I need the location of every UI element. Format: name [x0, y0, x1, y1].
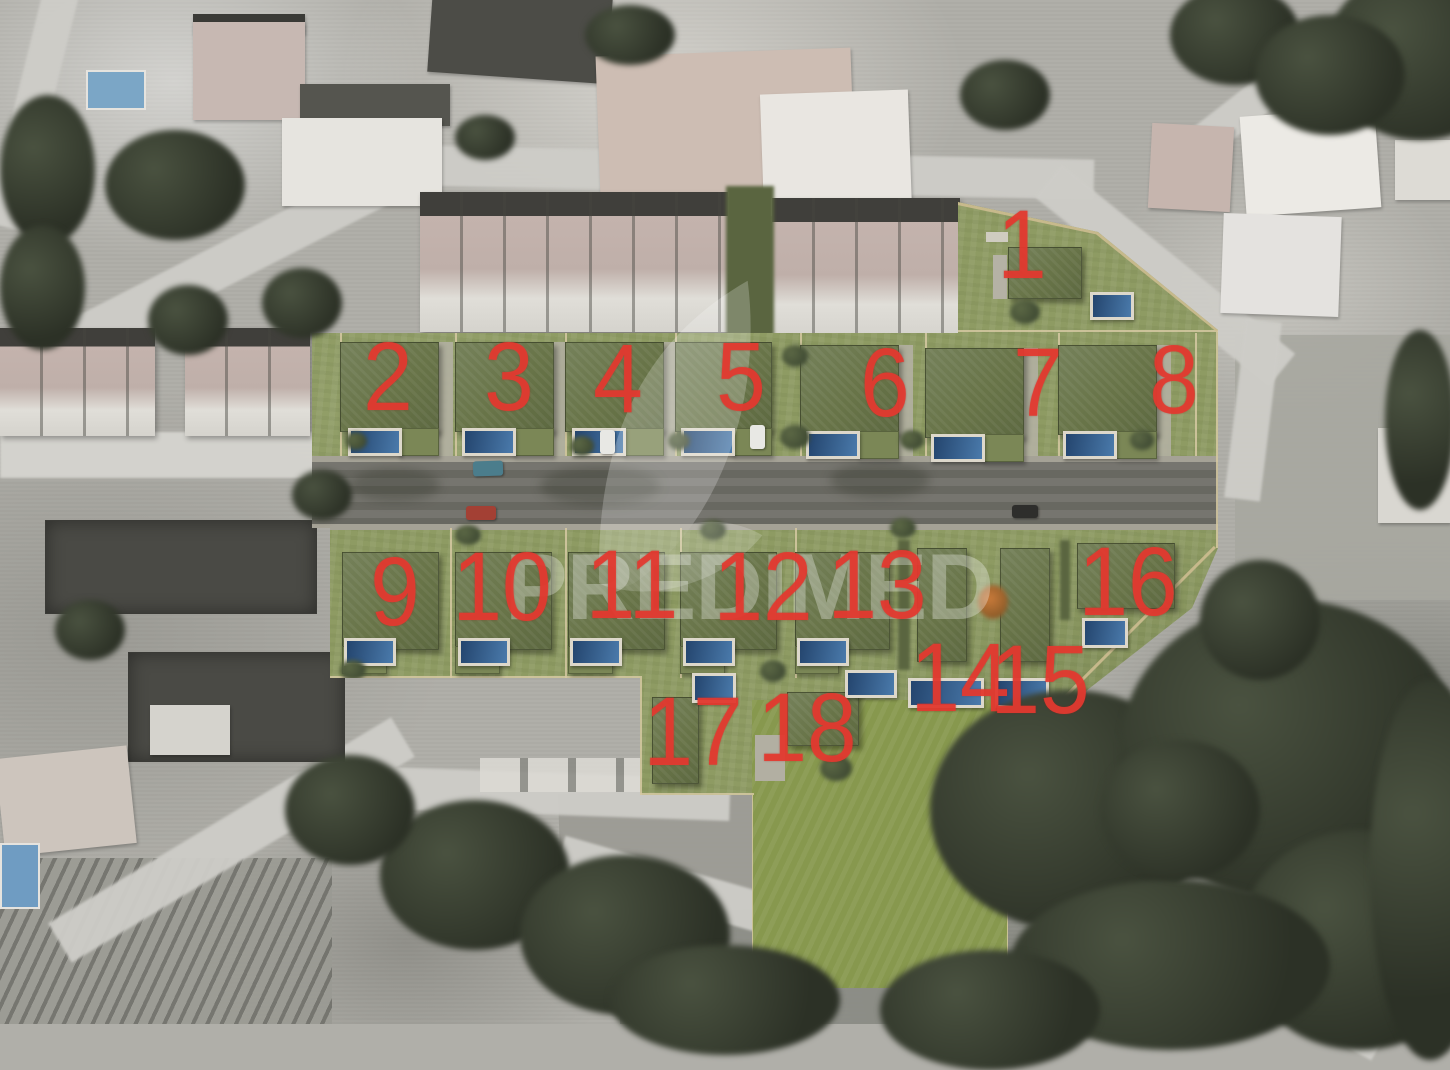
pool: [1090, 292, 1134, 320]
house-roof: [193, 22, 305, 120]
lot-number-5: 5: [716, 328, 766, 425]
house-roof: [427, 0, 613, 84]
tree-cluster: [0, 225, 85, 350]
lot-number-6: 6: [860, 334, 910, 431]
house-roof: [150, 705, 230, 755]
existing-pool: [86, 70, 146, 110]
lot-wall: [330, 676, 642, 678]
tree-cluster: [285, 755, 415, 865]
pool: [931, 434, 985, 462]
tree-cluster: [1100, 740, 1260, 880]
pool: [1063, 431, 1117, 459]
lot-number-18: 18: [757, 679, 856, 776]
forest: [880, 950, 1100, 1070]
lot-wall: [640, 793, 754, 795]
villa-building: [1058, 345, 1157, 435]
lot-number-11: 11: [586, 536, 679, 633]
tree-cluster: [0, 95, 95, 245]
tree-cluster: [262, 268, 342, 338]
road-shadow: [350, 468, 440, 502]
lot-number-13: 13: [827, 536, 926, 633]
car-teal: [473, 460, 504, 476]
car-red: [466, 506, 496, 520]
car-dark: [1012, 505, 1038, 518]
tree-cluster: [148, 285, 228, 355]
tree-cluster: [1200, 560, 1320, 680]
tree-cluster: [105, 130, 245, 240]
lot-number-10: 10: [452, 538, 551, 635]
pool: [570, 638, 622, 666]
pool: [683, 638, 735, 666]
street-left-row: [0, 432, 318, 478]
house-roof: [282, 118, 442, 206]
lot-number-7: 7: [1013, 334, 1063, 431]
pool: [797, 638, 849, 666]
pool: [458, 638, 510, 666]
lot-number-4: 4: [593, 330, 643, 427]
lot-number-3: 3: [484, 328, 534, 425]
lot-number-12: 12: [713, 538, 812, 635]
lot-number-15: 15: [990, 631, 1089, 728]
lot-number-2: 2: [363, 328, 413, 425]
lot-wall: [1216, 330, 1218, 548]
tree: [1010, 300, 1040, 324]
driveway: [437, 342, 453, 456]
house-roof: [1220, 213, 1341, 317]
lot-wall: [640, 678, 642, 795]
tree: [340, 660, 366, 680]
lot-number-8: 8: [1149, 331, 1199, 428]
road-shadow: [830, 462, 930, 498]
villa-building: [925, 348, 1024, 438]
house-roof: [1395, 140, 1450, 200]
hedge-row: [1060, 540, 1070, 620]
tree-cluster: [960, 60, 1050, 130]
terraced-row-west-a: [0, 328, 155, 436]
tree-cluster: [55, 600, 125, 660]
lot-number-16: 16: [1078, 533, 1177, 630]
lot-number-1: 1: [997, 196, 1047, 293]
pool: [462, 428, 516, 456]
tree-cluster: [610, 945, 840, 1055]
tree-cluster: [1385, 330, 1450, 510]
tree-cluster: [455, 115, 515, 160]
lot-number-9: 9: [370, 543, 420, 640]
tree: [345, 432, 367, 450]
tree-cluster: [1255, 15, 1405, 135]
house-roof: [1148, 123, 1234, 212]
tree-cluster: [292, 470, 352, 520]
existing-pool: [0, 843, 40, 909]
lot-number-17: 17: [643, 683, 742, 780]
tree-cluster: [585, 5, 675, 65]
house-roof: [0, 745, 137, 856]
